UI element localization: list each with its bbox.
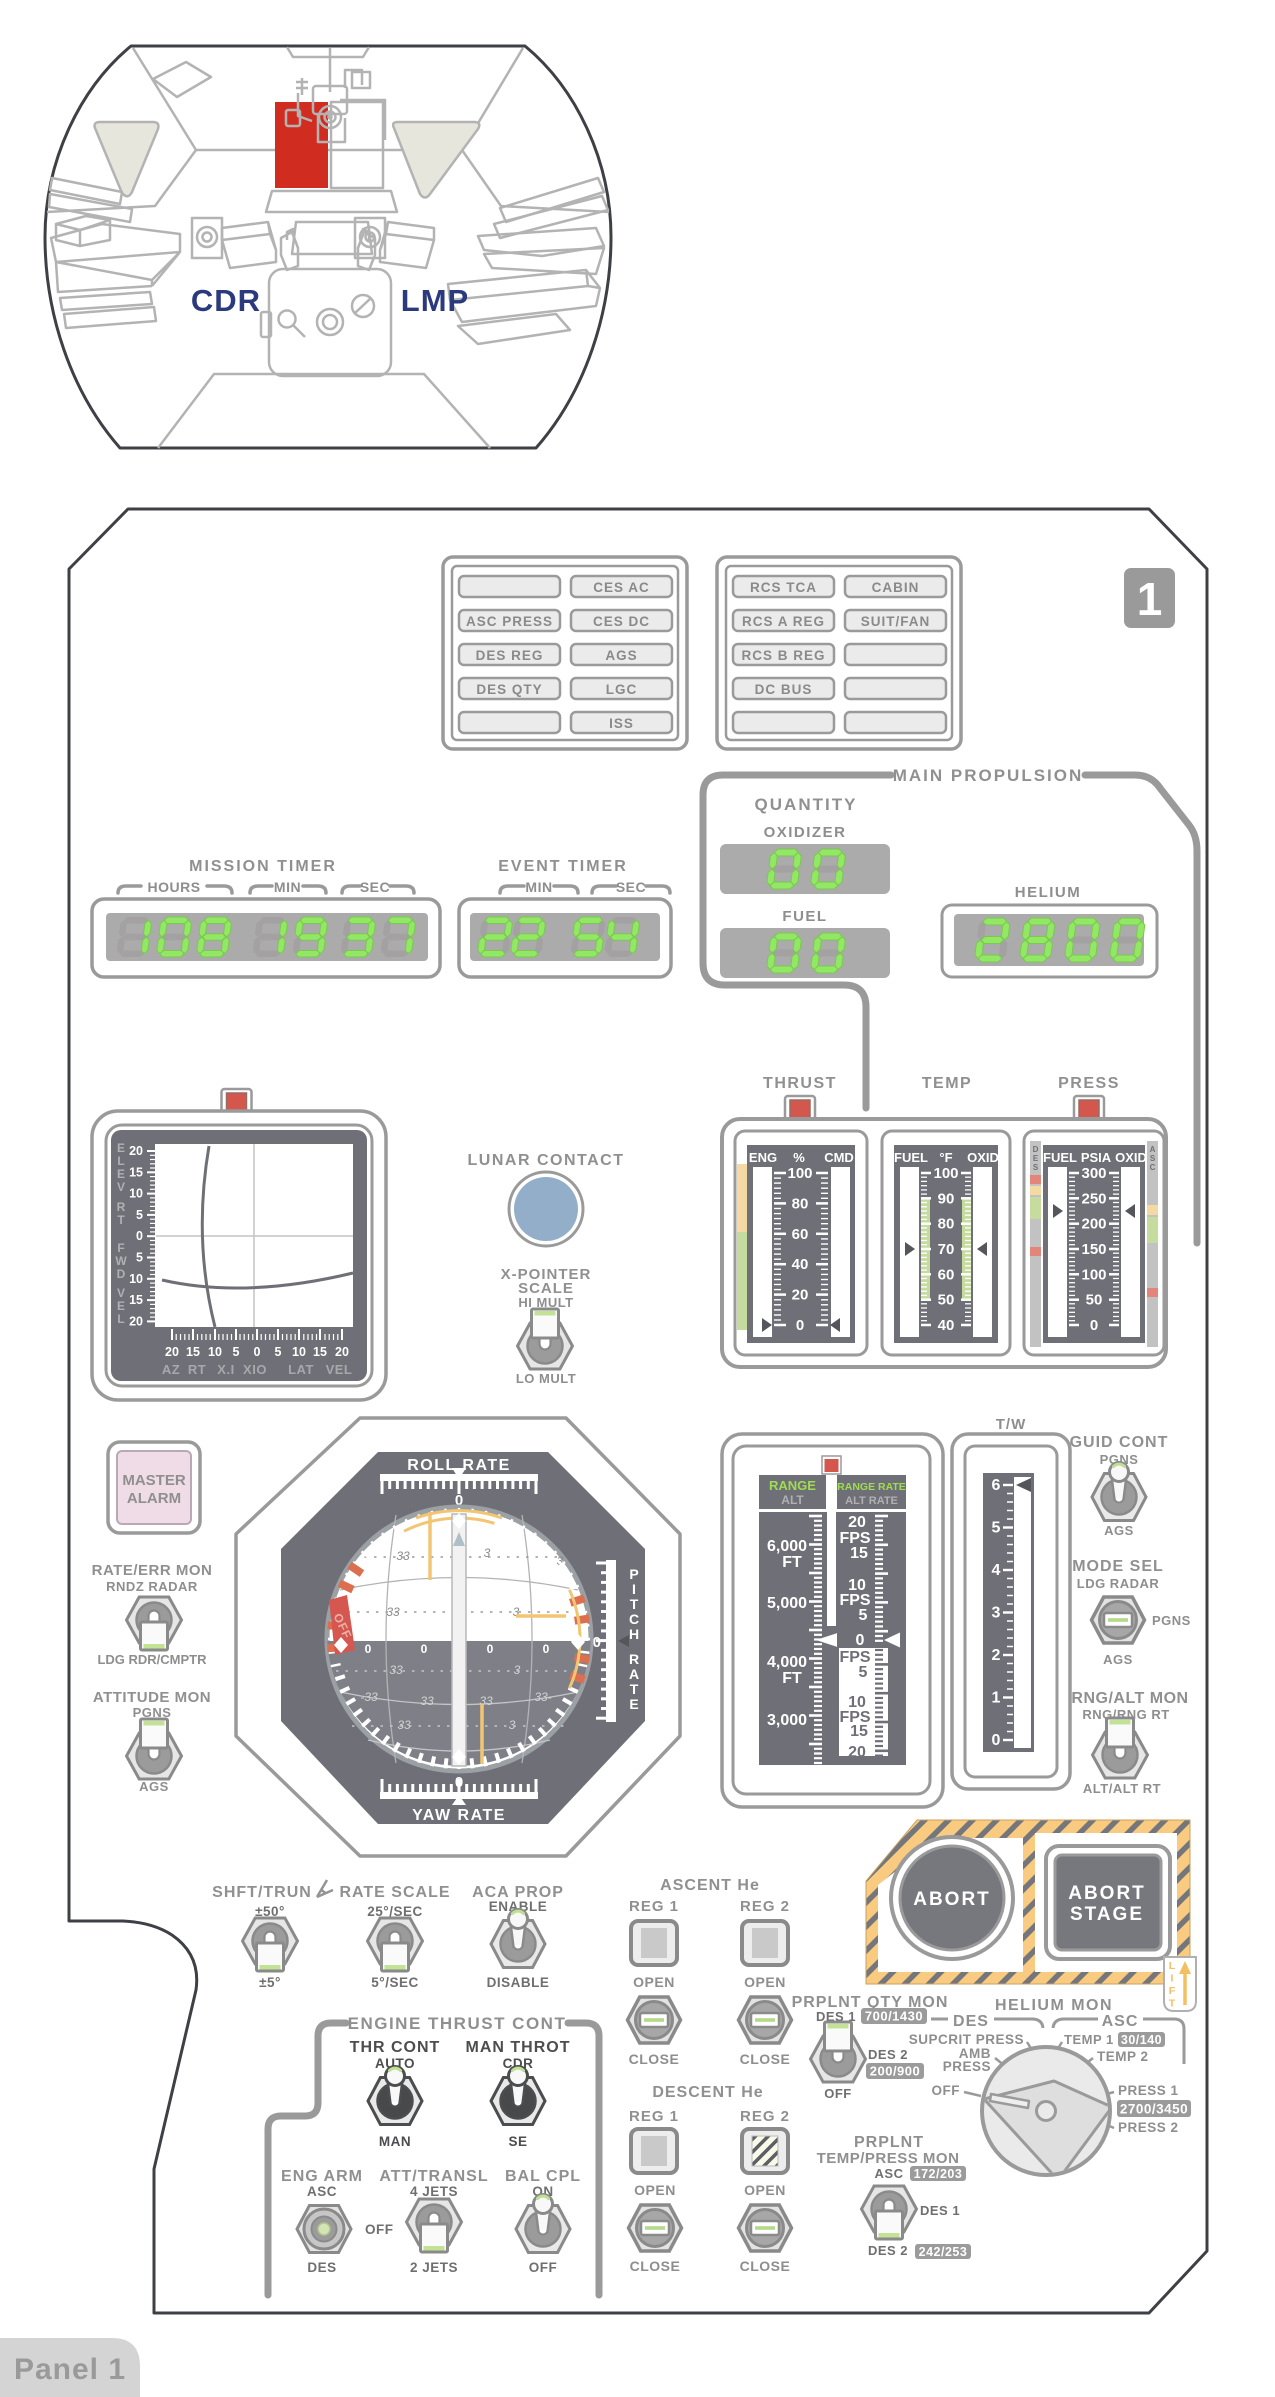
svg-text:TEMP: TEMP [922, 1075, 972, 1092]
svg-text:I: I [632, 1581, 636, 1597]
svg-text:5: 5 [859, 1607, 868, 1624]
svg-text:DISABLE: DISABLE [487, 1975, 550, 1990]
svg-text:SHFT/TRUN: SHFT/TRUN [212, 1884, 312, 1901]
svg-text:33: 33 [386, 1605, 400, 1619]
svg-text:ASC: ASC [307, 2184, 337, 2199]
svg-text:5,000: 5,000 [767, 1595, 807, 1612]
svg-text:3: 3 [992, 1605, 1001, 1622]
svg-text:0: 0 [593, 1634, 601, 1651]
svg-text:CLOSE: CLOSE [630, 2258, 681, 2274]
svg-text:RNDZ RADAR: RNDZ RADAR [106, 1579, 198, 1594]
svg-text:PRESS: PRESS [943, 2059, 991, 2074]
svg-text:0: 0 [856, 1632, 865, 1649]
svg-text:5: 5 [992, 1520, 1001, 1537]
svg-text:OXIDIZER: OXIDIZER [764, 824, 847, 841]
svg-text:QUANTITY: QUANTITY [755, 795, 858, 814]
svg-text:SUPCRIT PRESS: SUPCRIT PRESS [909, 2032, 1024, 2047]
svg-text:S: S [1150, 1154, 1156, 1163]
svg-text:BAL CPL: BAL CPL [505, 2168, 581, 2185]
svg-text:T: T [117, 1213, 125, 1227]
svg-text:2 JETS: 2 JETS [410, 2260, 458, 2275]
svg-text:ISS: ISS [609, 716, 634, 731]
svg-text:5: 5 [275, 1345, 282, 1359]
svg-text:10: 10 [208, 1345, 222, 1359]
svg-text:E: E [117, 1141, 125, 1155]
svg-text:DES REG: DES REG [476, 648, 544, 663]
svg-text:30/140: 30/140 [1121, 2033, 1162, 2047]
svg-text:%: % [793, 1150, 805, 1165]
svg-text:ENGINE THRUST CONT: ENGINE THRUST CONT [348, 2014, 567, 2033]
svg-text:3: 3 [514, 1663, 521, 1677]
svg-text:700/1430: 700/1430 [865, 2009, 923, 2024]
svg-text:250: 250 [1081, 1190, 1106, 1207]
svg-text:200/900: 200/900 [870, 2064, 921, 2079]
svg-text:MIN: MIN [525, 879, 552, 895]
svg-text:OPEN: OPEN [744, 1974, 786, 1990]
svg-text:RATE SCALE: RATE SCALE [339, 1884, 450, 1901]
svg-text:33: 33 [389, 1663, 403, 1677]
svg-text:AGS: AGS [139, 1779, 169, 1794]
svg-text:VEL: VEL [326, 1362, 353, 1377]
svg-text:T: T [630, 1596, 639, 1612]
svg-text:F: F [117, 1241, 124, 1255]
svg-text:300: 300 [1081, 1165, 1106, 1182]
svg-text:5: 5 [136, 1208, 143, 1222]
svg-text:200: 200 [1081, 1216, 1106, 1233]
svg-text:5: 5 [859, 1664, 868, 1681]
svg-text:150: 150 [1081, 1241, 1106, 1258]
svg-text:LGC: LGC [606, 682, 638, 697]
svg-text:D: D [1033, 1145, 1039, 1154]
svg-text:LAT: LAT [288, 1362, 314, 1377]
svg-text:DC BUS: DC BUS [755, 682, 813, 697]
svg-text:ASCENT He: ASCENT He [660, 1877, 760, 1894]
svg-text:ENG ARM: ENG ARM [281, 2168, 363, 2185]
svg-text:CES DC: CES DC [593, 614, 650, 629]
svg-text:ALT: ALT [781, 1493, 804, 1507]
svg-text:±5°: ±5° [259, 1975, 281, 1990]
svg-text:Panel 1: Panel 1 [14, 2353, 126, 2386]
svg-text:R: R [117, 1200, 126, 1214]
svg-text:L: L [1169, 1960, 1176, 1972]
svg-text:LO MULT: LO MULT [516, 1371, 576, 1386]
svg-text:ASC: ASC [1102, 2013, 1139, 2030]
svg-text:F: F [1169, 1985, 1176, 1997]
svg-text:R: R [629, 1651, 639, 1667]
svg-text:MAIN PROPULSION: MAIN PROPULSION [893, 766, 1084, 785]
svg-text:DES 1: DES 1 [920, 2203, 960, 2218]
svg-text:20: 20 [129, 1144, 143, 1158]
svg-text:0: 0 [1090, 1317, 1098, 1334]
svg-text:5°/SEC: 5°/SEC [371, 1975, 418, 1990]
svg-text:PRESS: PRESS [1058, 1075, 1120, 1092]
svg-text:OFF: OFF [824, 2086, 852, 2101]
svg-text:0: 0 [796, 1317, 804, 1334]
svg-text:ATTITUDE MON: ATTITUDE MON [93, 1689, 211, 1706]
svg-text:L: L [117, 1154, 124, 1168]
svg-text:CDR: CDR [191, 283, 261, 318]
svg-text:HELIUM: HELIUM [1015, 884, 1082, 901]
svg-text:SE: SE [508, 2134, 527, 2149]
svg-text:20: 20 [165, 1345, 179, 1359]
svg-text:CLOSE: CLOSE [629, 2051, 680, 2067]
svg-text:PGNS: PGNS [1152, 1613, 1191, 1628]
svg-text:MIN: MIN [274, 879, 301, 895]
svg-text:RCS B REG: RCS B REG [741, 648, 825, 663]
svg-text:50: 50 [1086, 1292, 1103, 1309]
svg-text:W: W [115, 1254, 127, 1268]
svg-text:3: 3 [484, 1546, 491, 1560]
svg-text:MISSION TIMER: MISSION TIMER [189, 858, 337, 875]
svg-text:TEMP 2: TEMP 2 [1097, 2049, 1149, 2064]
svg-text:4: 4 [992, 1562, 1001, 1579]
svg-text:RNG/ALT MON: RNG/ALT MON [1071, 1690, 1188, 1707]
svg-text:33: 33 [396, 1549, 410, 1563]
svg-text:AGS: AGS [1103, 1652, 1133, 1667]
svg-text:SEC: SEC [616, 879, 646, 895]
svg-text:33: 33 [420, 1694, 434, 1708]
svg-text:-33: -33 [360, 1690, 378, 1704]
svg-text:242/253: 242/253 [919, 2245, 968, 2259]
svg-text:A: A [1150, 1145, 1156, 1154]
svg-text:FUEL: FUEL [782, 908, 827, 925]
svg-text:FT: FT [782, 1670, 802, 1687]
svg-text:CABIN: CABIN [872, 580, 920, 595]
svg-text:E: E [117, 1299, 125, 1313]
svg-text:OXID: OXID [967, 1150, 999, 1165]
svg-text:°F: °F [939, 1150, 952, 1165]
svg-text:PSIA: PSIA [1081, 1150, 1112, 1165]
svg-text:PRESS 1: PRESS 1 [1118, 2083, 1179, 2098]
svg-text:XIO: XIO [243, 1362, 267, 1377]
svg-text:A: A [629, 1666, 639, 1682]
svg-text:0: 0 [365, 1642, 372, 1656]
svg-text:PRPLNT: PRPLNT [854, 2134, 924, 2151]
svg-text:E: E [629, 1696, 638, 1712]
svg-text:AZ: AZ [162, 1362, 180, 1377]
svg-text:0: 0 [254, 1345, 261, 1359]
svg-text:60: 60 [938, 1266, 955, 1283]
svg-text:LMP: LMP [401, 283, 469, 318]
svg-text:I: I [1171, 1973, 1174, 1985]
svg-text:T: T [1169, 1998, 1176, 2010]
svg-text:20: 20 [335, 1345, 349, 1359]
svg-text:15: 15 [129, 1293, 143, 1307]
svg-text:RCS A REG: RCS A REG [742, 614, 825, 629]
svg-text:L: L [117, 1312, 124, 1326]
svg-text:OFF: OFF [932, 2083, 961, 2098]
svg-text:20: 20 [848, 1744, 866, 1761]
svg-text:172/203: 172/203 [914, 2167, 963, 2181]
svg-text:P: P [629, 1566, 638, 1582]
svg-text:REG 2: REG 2 [740, 2108, 790, 2125]
svg-text:AGS: AGS [1104, 1523, 1134, 1538]
svg-text:LDG RADAR: LDG RADAR [1077, 1576, 1160, 1591]
svg-text:TEMP/PRESS MON: TEMP/PRESS MON [817, 2150, 960, 2167]
svg-text:5: 5 [233, 1345, 240, 1359]
svg-text:DES 2: DES 2 [868, 2243, 908, 2258]
svg-text:V: V [117, 1286, 125, 1300]
svg-text:HOURS: HOURS [147, 879, 200, 895]
svg-text:OFF: OFF [365, 2222, 394, 2237]
svg-text:FUEL: FUEL [1043, 1150, 1077, 1165]
svg-text:80: 80 [792, 1195, 809, 1212]
svg-text:60: 60 [792, 1226, 809, 1243]
svg-text:15: 15 [129, 1165, 143, 1179]
svg-text:20: 20 [848, 1514, 866, 1531]
svg-text:OPEN: OPEN [744, 2182, 786, 2198]
svg-text:3: 3 [509, 1718, 516, 1732]
svg-text:V: V [117, 1180, 125, 1194]
svg-text:CLOSE: CLOSE [740, 2051, 791, 2067]
svg-text:T: T [630, 1681, 639, 1697]
svg-text:2700/3450: 2700/3450 [1120, 2101, 1188, 2116]
svg-text:0: 0 [421, 1642, 428, 1656]
svg-text:REG 1: REG 1 [629, 1898, 679, 1915]
svg-text:100: 100 [1081, 1266, 1106, 1283]
svg-text:6: 6 [992, 1477, 1001, 1494]
svg-text:MAN: MAN [379, 2134, 411, 2149]
svg-text:DES 2: DES 2 [868, 2047, 908, 2062]
svg-text:SEC: SEC [360, 879, 390, 895]
svg-text:4 JETS: 4 JETS [410, 2184, 458, 2199]
svg-text:RCS TCA: RCS TCA [750, 580, 817, 595]
svg-text:3,000: 3,000 [767, 1712, 807, 1729]
svg-text:MAN THROT: MAN THROT [466, 2039, 571, 2056]
svg-text:10: 10 [292, 1345, 306, 1359]
svg-text:S: S [1033, 1163, 1039, 1172]
svg-text:T/W: T/W [996, 1416, 1027, 1433]
svg-text:ABORT: ABORT [1068, 1883, 1146, 1904]
svg-text:THR CONT: THR CONT [350, 2039, 441, 2056]
svg-text:MODE SEL: MODE SEL [1072, 1558, 1164, 1575]
svg-text:H: H [629, 1626, 639, 1642]
svg-text:80: 80 [938, 1216, 955, 1233]
svg-text:1: 1 [1137, 573, 1163, 625]
svg-text:GUID CONT: GUID CONT [1070, 1434, 1169, 1451]
svg-text:HELIUM MON: HELIUM MON [995, 1997, 1113, 2014]
svg-text:RANGE: RANGE [769, 1478, 816, 1493]
svg-text:FT: FT [782, 1554, 802, 1571]
svg-text:X.I: X.I [217, 1362, 234, 1377]
svg-text:0: 0 [992, 1732, 1001, 1749]
svg-text:THRUST: THRUST [763, 1075, 837, 1092]
svg-text:90: 90 [938, 1190, 955, 1207]
svg-text:ASC: ASC [875, 2166, 904, 2181]
svg-text:40: 40 [938, 1317, 955, 1334]
svg-text:0: 0 [487, 1642, 494, 1656]
svg-text:LUNAR CONTACT: LUNAR CONTACT [468, 1152, 625, 1169]
svg-text:FUEL: FUEL [894, 1150, 928, 1165]
svg-text:OPEN: OPEN [634, 2182, 676, 2198]
svg-text:ALT/ALT RT: ALT/ALT RT [1083, 1781, 1161, 1796]
svg-text:TEMP 1: TEMP 1 [1064, 2032, 1114, 2047]
svg-text:CMD: CMD [824, 1150, 854, 1165]
svg-text:OXID: OXID [1115, 1150, 1147, 1165]
svg-text:0: 0 [543, 1642, 550, 1656]
svg-text:15: 15 [850, 1545, 868, 1562]
svg-text:OPEN: OPEN [633, 1974, 675, 1990]
svg-text:0: 0 [136, 1229, 143, 1243]
svg-text:CLOSE: CLOSE [740, 2258, 791, 2274]
svg-text:AGS: AGS [605, 648, 637, 663]
svg-text:100: 100 [933, 1165, 958, 1182]
svg-text:40: 40 [792, 1256, 809, 1273]
svg-text:50: 50 [938, 1292, 955, 1309]
svg-text:YAW RATE: YAW RATE [412, 1807, 506, 1824]
svg-text:ABORT: ABORT [913, 1889, 991, 1910]
svg-text:20: 20 [792, 1287, 809, 1304]
svg-text:20: 20 [129, 1314, 143, 1328]
svg-text:D: D [117, 1267, 126, 1281]
svg-text:E: E [1033, 1154, 1039, 1163]
svg-text:1: 1 [992, 1690, 1001, 1707]
svg-text:ALARM: ALARM [127, 1490, 181, 1507]
svg-text:RANGE RATE: RANGE RATE [837, 1481, 906, 1493]
svg-text:6,000: 6,000 [767, 1538, 807, 1555]
svg-text:2: 2 [992, 1647, 1001, 1664]
svg-text:5: 5 [136, 1251, 143, 1265]
svg-text:LDG RDR/CMPTR: LDG RDR/CMPTR [97, 1652, 207, 1667]
svg-text:C: C [1150, 1163, 1156, 1172]
svg-text:OFF: OFF [529, 2260, 558, 2275]
svg-text:15: 15 [850, 1723, 868, 1740]
svg-text:STAGE: STAGE [1070, 1904, 1144, 1925]
svg-text:DESCENT He: DESCENT He [652, 2084, 763, 2101]
svg-text:PRESS 2: PRESS 2 [1118, 2120, 1179, 2135]
svg-text:DES: DES [953, 2013, 989, 2030]
svg-text:RT: RT [188, 1362, 206, 1377]
svg-text:E: E [117, 1167, 125, 1181]
svg-text:33-: 33- [534, 1690, 551, 1704]
svg-text:4,000: 4,000 [767, 1654, 807, 1671]
svg-text:100: 100 [787, 1165, 812, 1182]
svg-text:SUIT/FAN: SUIT/FAN [861, 614, 931, 629]
svg-text:10: 10 [129, 1187, 143, 1201]
svg-text:10: 10 [129, 1272, 143, 1286]
svg-text:15: 15 [313, 1345, 327, 1359]
svg-text:REG 1: REG 1 [629, 2108, 679, 2125]
svg-text:CES AC: CES AC [593, 580, 650, 595]
svg-text:DES QTY: DES QTY [476, 682, 542, 697]
svg-text:MASTER: MASTER [122, 1472, 186, 1489]
svg-text:ASC PRESS: ASC PRESS [466, 614, 553, 629]
svg-text:70: 70 [938, 1241, 955, 1258]
svg-text:15: 15 [186, 1345, 200, 1359]
svg-text:RATE/ERR MON: RATE/ERR MON [92, 1562, 213, 1579]
svg-text:C: C [629, 1611, 639, 1627]
svg-text:EVENT TIMER: EVENT TIMER [498, 858, 628, 875]
svg-text:33: 33 [397, 1718, 411, 1732]
svg-text:ALT RATE: ALT RATE [845, 1495, 898, 1507]
svg-text:ENG: ENG [749, 1150, 777, 1165]
svg-text:ATT/TRANSL: ATT/TRANSL [379, 2168, 488, 2185]
svg-text:DES: DES [307, 2260, 336, 2275]
svg-text:REG 2: REG 2 [740, 1898, 790, 1915]
